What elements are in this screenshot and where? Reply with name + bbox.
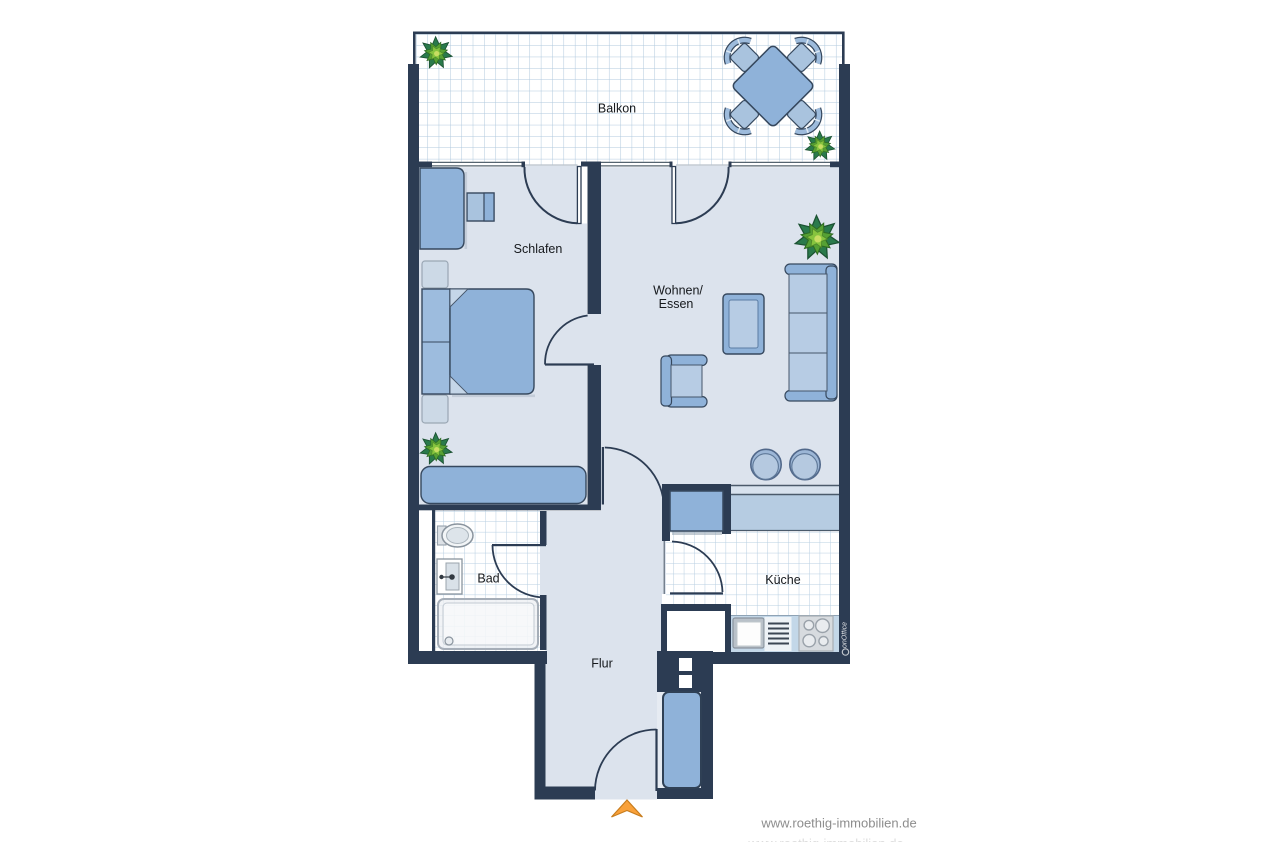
svg-text:Flur: Flur [591,657,613,671]
svg-text:Essen: Essen [659,297,694,311]
svg-text:Küche: Küche [765,573,800,587]
svg-text:Bad: Bad [477,572,499,586]
svg-text:Balkon: Balkon [598,102,636,116]
svg-text:www.roethig-immobilien.de: www.roethig-immobilien.de [760,816,916,831]
svg-text:Schlafen: Schlafen [514,242,563,256]
svg-text:www.roethig-immobilien.de: www.roethig-immobilien.de [747,836,903,842]
svg-text:onOffice: onOffice [842,622,849,648]
svg-text:Wohnen/: Wohnen/ [653,284,703,298]
